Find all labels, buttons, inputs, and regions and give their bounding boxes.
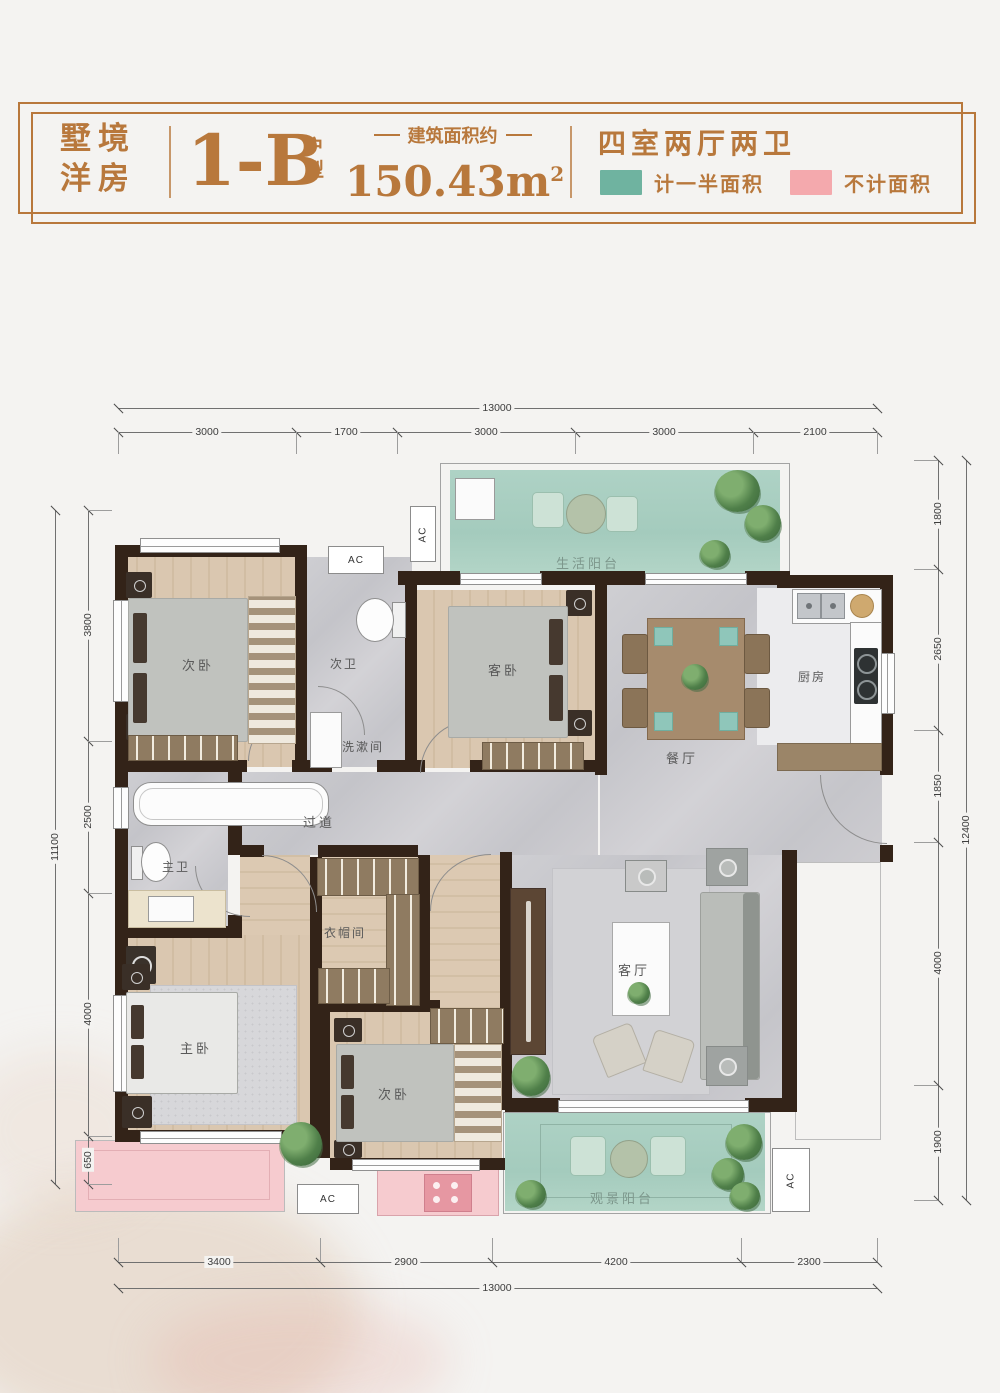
toilet	[392, 602, 406, 638]
dim-top-1: 3000	[192, 426, 221, 438]
label-guest-bedroom: 客卧	[488, 660, 520, 679]
label-kitchen: 厨房	[798, 668, 826, 685]
ext-line	[877, 432, 878, 454]
dim-left-2: 2500	[82, 802, 94, 831]
ext-line	[320, 1238, 321, 1262]
dash-left	[374, 134, 400, 136]
dining-chair	[622, 634, 648, 674]
dim-top-5: 2100	[800, 426, 829, 438]
layout-title: 四室两厅两卫	[598, 122, 796, 162]
kitchen-sink	[797, 593, 821, 619]
ext-line	[914, 1200, 938, 1201]
dining-chair	[622, 688, 648, 728]
unit-suffix: 户 型	[305, 136, 326, 182]
ext-line	[88, 893, 112, 894]
bench	[248, 596, 296, 744]
legend-swatch-not-counted	[790, 170, 832, 195]
dim-right-total: 12400	[960, 812, 972, 847]
ext-line	[88, 1136, 112, 1137]
header-divider-1	[169, 126, 171, 198]
dining-chair	[744, 634, 770, 674]
wall	[318, 845, 418, 857]
pink-area-left-inner	[88, 1150, 270, 1200]
coffee-table-plant	[628, 982, 650, 1004]
ext-line	[397, 432, 398, 454]
balcony-chair	[570, 1136, 606, 1176]
area-block: 建筑面积约 150.43m2	[345, 122, 560, 208]
dim-right-2: 2650	[932, 634, 944, 663]
dim-left-total: 11100	[49, 830, 61, 864]
dim-bottom-total: 13000	[479, 1282, 514, 1294]
dim-bottom-2: 2900	[391, 1256, 420, 1268]
window	[645, 573, 747, 585]
tv-cabinet	[510, 888, 546, 1055]
nightstand	[122, 964, 150, 990]
nightstand	[334, 1140, 362, 1158]
stool	[706, 1046, 748, 1086]
window	[140, 1131, 282, 1144]
legend-swatch-half-area	[600, 170, 642, 195]
ext-line	[118, 432, 119, 454]
wall	[118, 760, 247, 772]
ext-line	[914, 730, 938, 731]
void-area	[795, 862, 881, 1140]
label-corridor: 过道	[303, 812, 335, 831]
floorplan-page: 墅境 洋房 1-B 户 型 建筑面积约 150.43m2 四室两厅两卫 计一半面…	[0, 0, 1000, 1393]
nightstand	[566, 710, 592, 736]
plant	[715, 470, 760, 512]
background-art	[150, 1300, 450, 1393]
area-label: 建筑面积约	[345, 122, 560, 148]
window	[558, 1100, 749, 1113]
dim-bottom-3: 4200	[601, 1256, 630, 1268]
legend-label-half-area: 计一半面积	[654, 168, 764, 197]
dim-left-1: 3800	[82, 610, 94, 639]
washbasin	[310, 712, 342, 768]
table-flowers	[682, 664, 708, 690]
wardrobe	[386, 894, 420, 1006]
ext-line	[296, 432, 297, 454]
ext-line	[88, 1184, 112, 1185]
dim-bottom-1: 3400	[204, 1256, 233, 1268]
bath-sink	[148, 896, 194, 922]
ext-line	[877, 1238, 878, 1262]
label-master-bedroom: 主卧	[180, 1038, 212, 1057]
nightstand	[566, 590, 592, 616]
balcony-chair	[650, 1136, 686, 1176]
bathtub	[133, 782, 329, 826]
label-bedroom-bottom: 次卧	[378, 1084, 410, 1103]
cutting-board	[850, 594, 874, 618]
plant	[730, 1182, 760, 1210]
wall	[240, 845, 264, 857]
window	[113, 600, 129, 702]
stove	[854, 648, 878, 704]
wardrobe	[430, 1008, 504, 1044]
label-washroom: 洗漱间	[342, 738, 384, 755]
label-master-bath: 主卫	[162, 858, 190, 875]
window	[113, 787, 129, 829]
ext-line	[914, 1085, 938, 1086]
wall	[777, 575, 893, 588]
plant	[745, 505, 781, 541]
ext-line	[88, 741, 112, 742]
pink-grid-table	[424, 1174, 472, 1212]
stool	[706, 848, 748, 886]
plant	[512, 1056, 550, 1096]
legend-label-not-counted: 不计面积	[844, 168, 932, 197]
plant	[726, 1124, 762, 1160]
dim-left-3: 4000	[82, 999, 94, 1028]
wall	[377, 760, 425, 772]
label-living: 客厅	[618, 960, 650, 979]
ac-unit: AC	[328, 546, 384, 574]
dash-right	[506, 134, 532, 136]
ext-line	[914, 842, 938, 843]
side-table	[625, 860, 667, 892]
dim-top-4: 3000	[649, 426, 678, 438]
ext-line	[492, 1238, 493, 1262]
label-bedroom-top: 次卧	[182, 655, 214, 674]
dim-right-1: 1800	[932, 499, 944, 528]
label-view-balcony: 观景阳台	[590, 1188, 654, 1207]
ext-line	[575, 432, 576, 454]
ac-unit: AC	[410, 506, 436, 562]
ext-line	[753, 432, 754, 454]
dim-bottom-4: 2300	[794, 1256, 823, 1268]
dim-right-5: 1900	[932, 1127, 944, 1156]
toilet	[356, 598, 394, 642]
window	[460, 573, 542, 585]
window	[140, 538, 280, 553]
wall	[880, 845, 893, 862]
dim-right-4: 4000	[932, 948, 944, 977]
label-cloakroom: 衣帽间	[324, 924, 366, 941]
balcony-table	[610, 1140, 648, 1178]
washing-machine	[455, 478, 495, 520]
plant	[280, 1122, 322, 1166]
wardrobe	[317, 858, 419, 896]
wall	[228, 915, 242, 938]
plant	[700, 540, 730, 568]
dim-left-4: 650	[82, 1148, 94, 1172]
wardrobe	[128, 735, 238, 761]
ext-line	[741, 1238, 742, 1262]
wall	[782, 850, 797, 1112]
balcony-chair	[606, 496, 638, 532]
brand-name: 墅境 洋房	[60, 119, 136, 199]
header-divider-2	[570, 126, 572, 198]
legend: 计一半面积 不计面积	[600, 168, 946, 197]
brand-line2: 洋房	[60, 159, 136, 199]
dining-chair	[744, 688, 770, 728]
kitchen-bar	[777, 743, 882, 771]
ext-line	[88, 510, 112, 511]
ext-line	[914, 460, 938, 461]
label-bath-second: 次卫	[330, 655, 358, 672]
balcony-table	[566, 494, 606, 534]
wall	[595, 578, 607, 775]
ac-unit: AC	[297, 1184, 359, 1214]
wall	[405, 578, 417, 772]
brand-line1: 墅境	[60, 119, 136, 159]
unit-code: 1-B	[187, 115, 324, 207]
wall	[295, 545, 307, 772]
balcony-chair	[532, 492, 564, 528]
ac-unit: AC	[772, 1148, 810, 1212]
label-life-balcony: 生活阳台	[556, 553, 620, 572]
dim-top-total: 13000	[479, 402, 514, 414]
dim-top-2: 1700	[331, 426, 360, 438]
ext-line	[118, 1238, 119, 1262]
nightstand	[334, 1018, 362, 1042]
kitchen-sink	[821, 593, 845, 619]
wardrobe	[318, 968, 390, 1004]
plant	[516, 1180, 546, 1208]
wardrobe	[482, 742, 584, 770]
nightstand	[126, 572, 152, 598]
bench	[454, 1044, 502, 1142]
wall	[540, 571, 645, 585]
ext-line	[914, 569, 938, 570]
area-value: 150.43m2	[345, 148, 560, 208]
dim-right-3: 1850	[932, 771, 944, 800]
nightstand	[122, 1096, 152, 1128]
wall	[505, 1098, 560, 1112]
window	[352, 1159, 480, 1171]
label-dining: 餐厅	[666, 748, 698, 767]
dim-top-3: 3000	[471, 426, 500, 438]
